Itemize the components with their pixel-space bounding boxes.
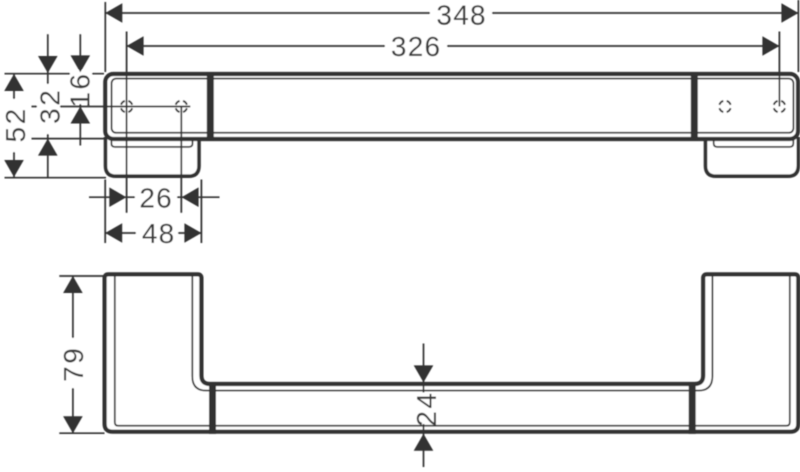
svg-text:16: 16 xyxy=(65,72,96,108)
svg-text:79: 79 xyxy=(58,346,89,382)
svg-text:326: 326 xyxy=(391,31,441,62)
svg-text:26: 26 xyxy=(139,183,173,214)
svg-text:32: 32 xyxy=(35,88,66,124)
svg-text:52: 52 xyxy=(0,106,31,142)
svg-text:48: 48 xyxy=(142,218,176,249)
svg-text:24: 24 xyxy=(411,391,442,427)
svg-text:348: 348 xyxy=(436,0,486,31)
